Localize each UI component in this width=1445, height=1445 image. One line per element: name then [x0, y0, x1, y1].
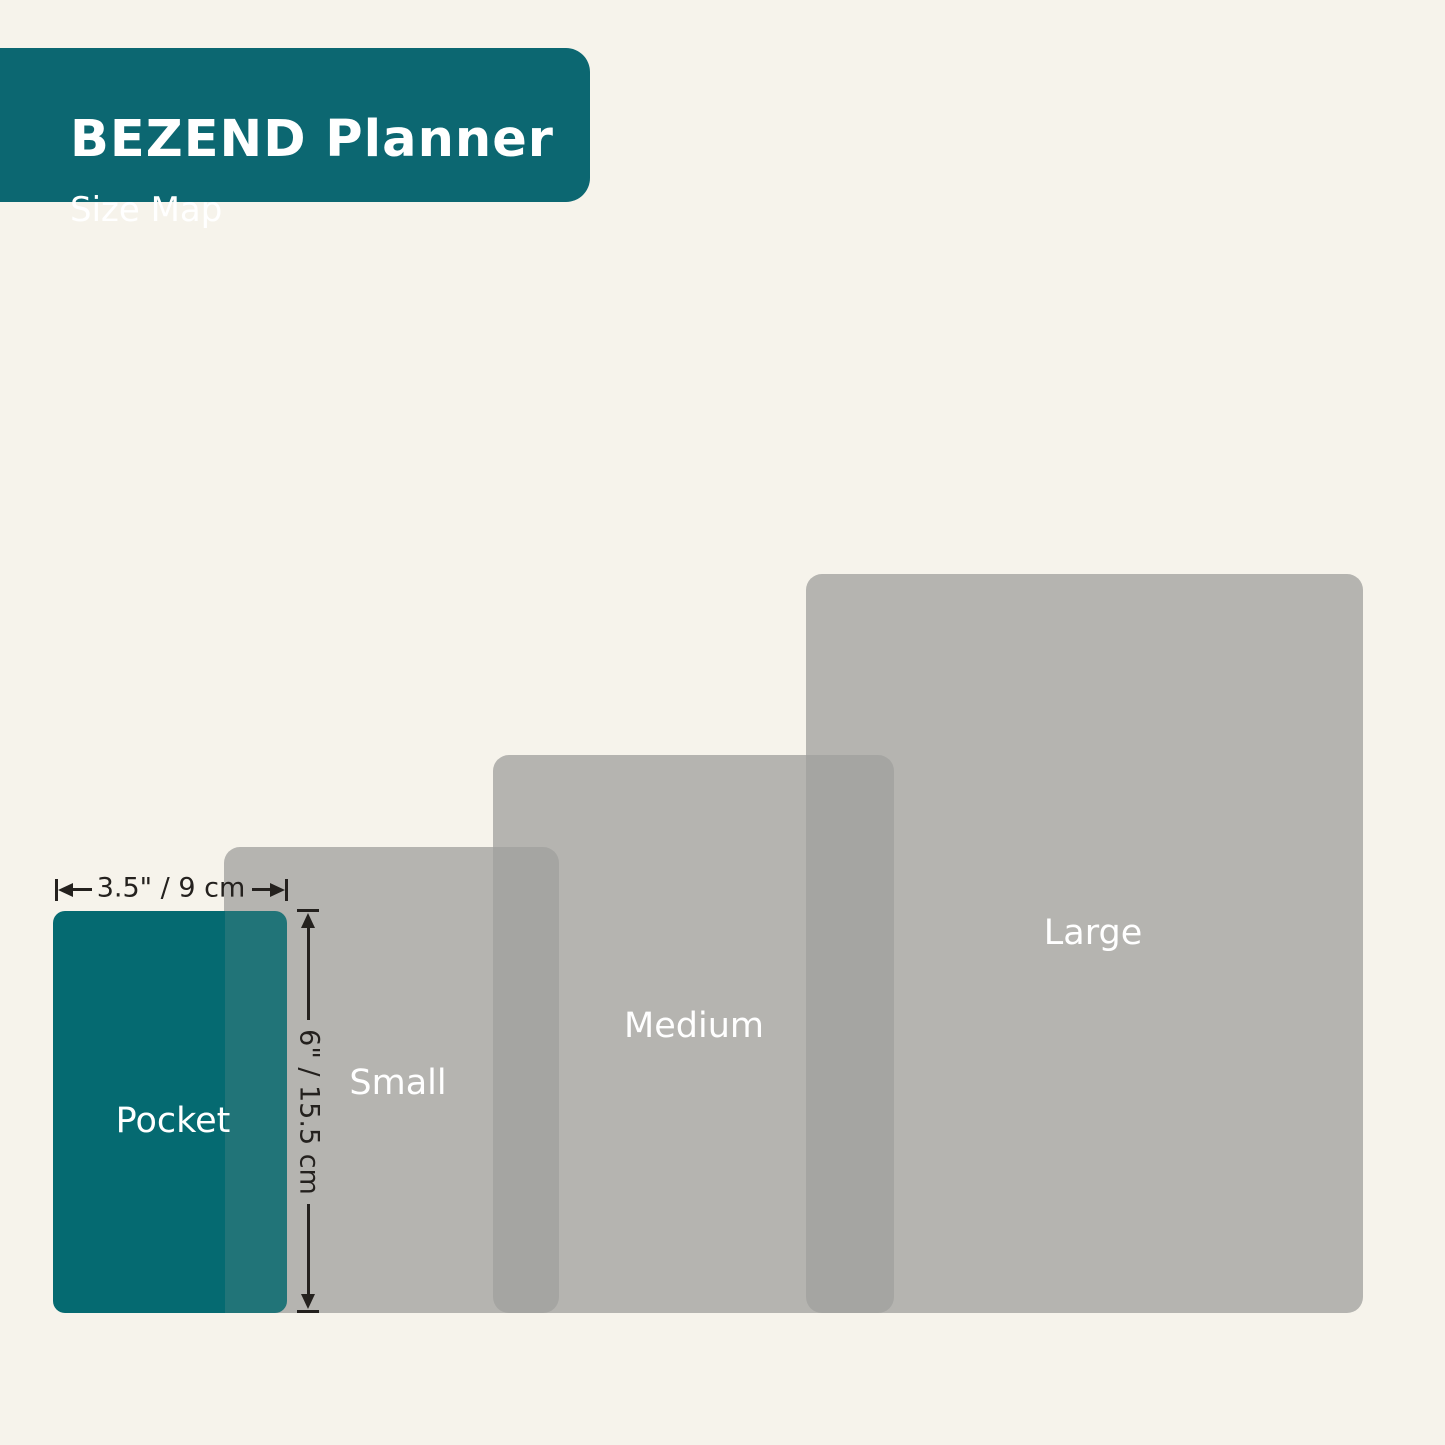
height-dim-arrow-up-icon	[301, 913, 315, 928]
header-card: BEZEND Planner Size Map	[0, 48, 590, 202]
height-dim-tick-top	[297, 909, 319, 912]
width-dim-arrow-right-icon	[270, 883, 285, 897]
page-subtitle: Size Map	[70, 190, 222, 230]
width-dim-line-left	[70, 888, 92, 891]
size-label-pocket: Pocket	[116, 1101, 231, 1141]
width-dim-line-right	[252, 888, 272, 891]
height-dim-tick-bottom	[297, 1310, 319, 1313]
size-label-large: Large	[1044, 913, 1142, 953]
size-label-small: Small	[349, 1063, 446, 1103]
height-dim-line-bottom	[307, 1204, 310, 1294]
size-label-medium: Medium	[624, 1006, 764, 1046]
size-map-infographic: BEZEND Planner Size Map Large Medium Sma…	[0, 0, 1445, 1445]
brand-title: BEZEND Planner	[70, 110, 554, 169]
height-dim-line-top	[307, 928, 310, 1020]
width-dim-tick-right	[285, 879, 288, 901]
size-rect-pocket: Pocket	[53, 911, 287, 1313]
height-dimension-label: 6" / 15.5 cm	[294, 1029, 325, 1195]
width-dimension-label: 3.5" / 9 cm	[97, 873, 246, 904]
height-dim-arrow-down-icon	[301, 1294, 315, 1309]
